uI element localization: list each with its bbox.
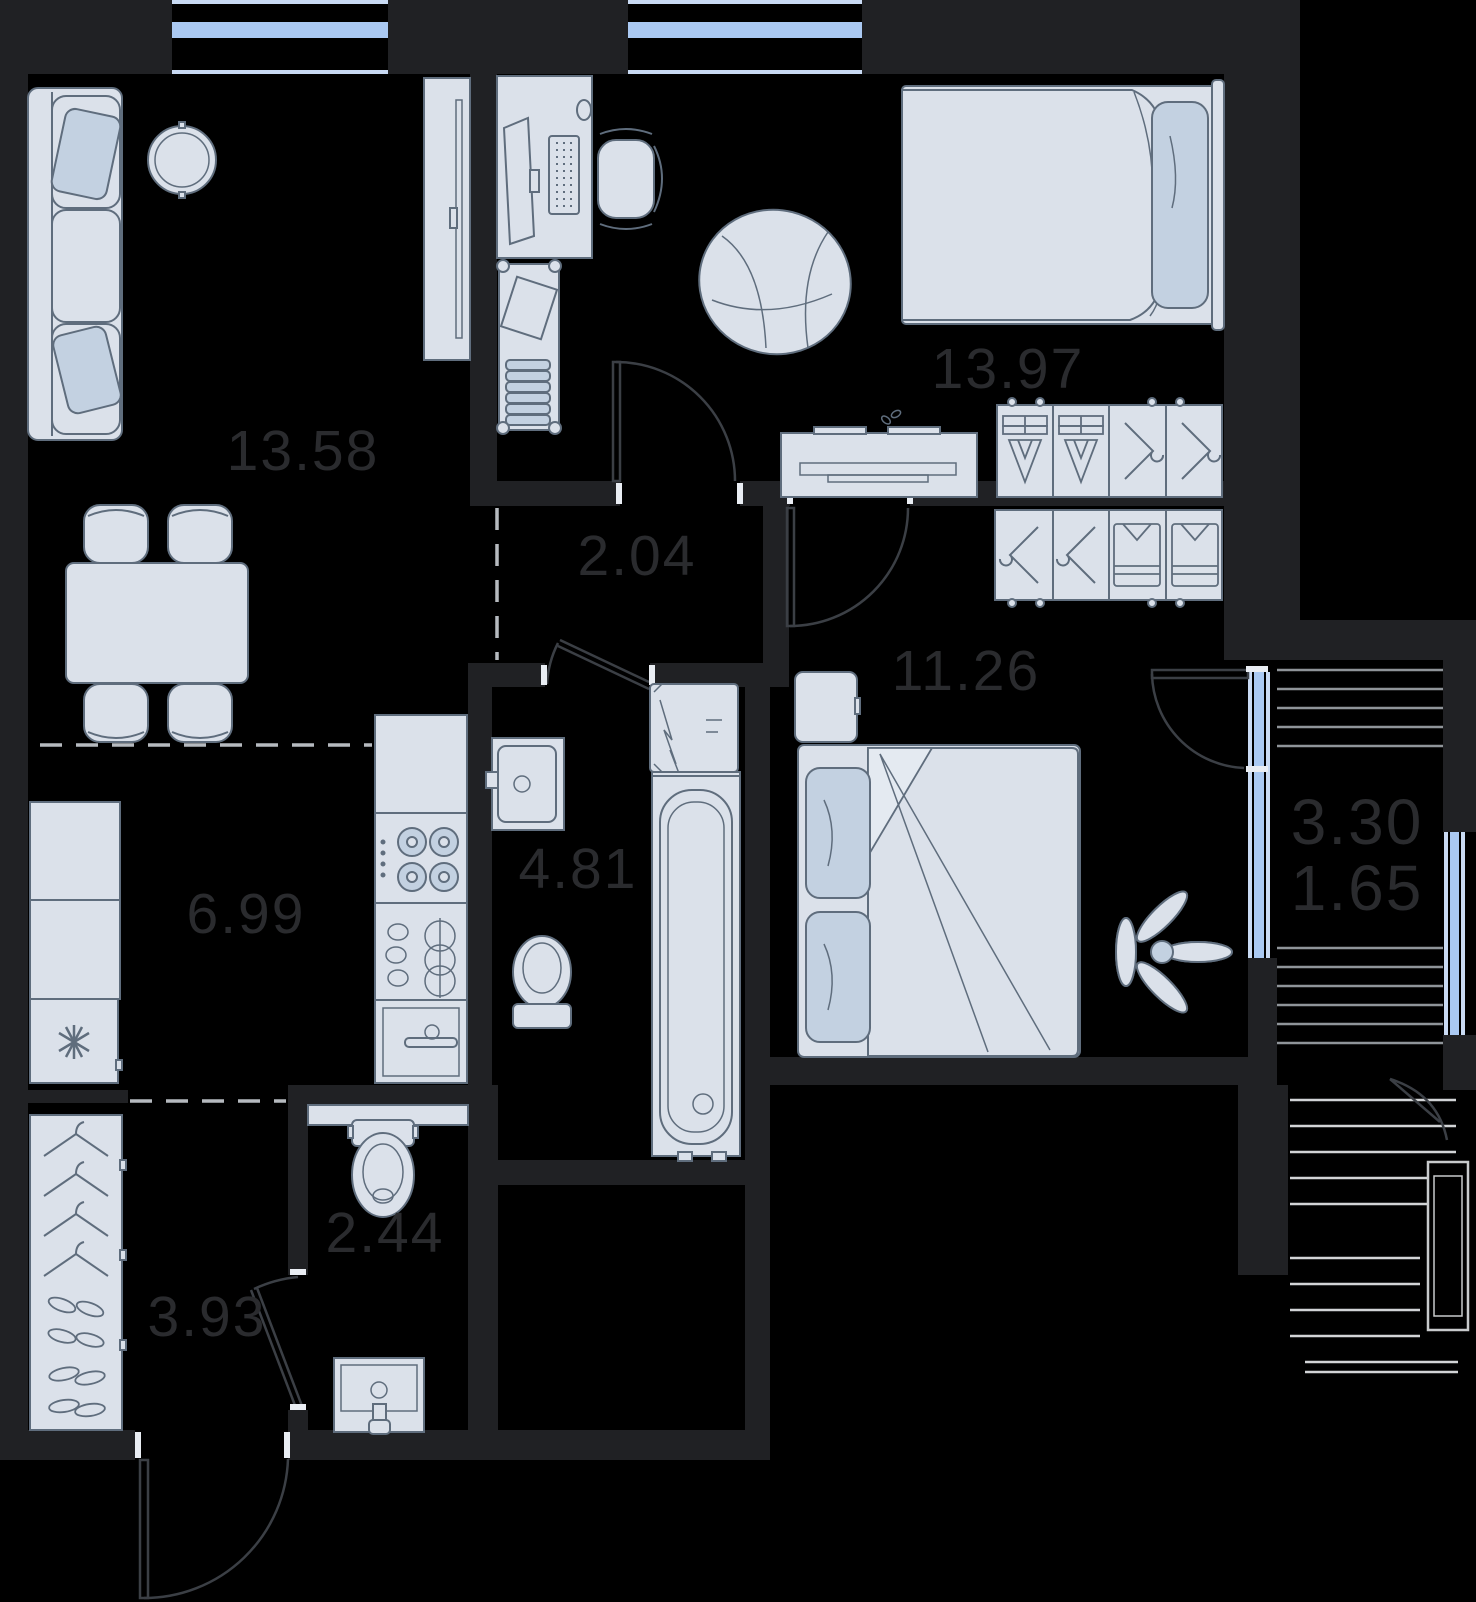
bookshelf — [497, 260, 561, 434]
window-living — [172, 0, 388, 74]
ac-unit — [1428, 1162, 1468, 1330]
label-balcony-total: 3.30 — [1291, 786, 1424, 858]
floor-plan-canvas: 13.58 2.04 13.97 11.26 6.99 4.81 2.44 3.… — [0, 0, 1476, 1602]
label-hallway: 2.04 — [578, 524, 697, 588]
door-entry — [140, 1459, 288, 1598]
stove — [375, 813, 467, 903]
pillow — [1152, 102, 1208, 308]
label-bathroom: 4.81 — [519, 837, 638, 901]
floor-plan: 13.58 2.04 13.97 11.26 6.99 4.81 2.44 3.… — [0, 0, 1476, 1602]
pillow — [806, 768, 870, 898]
toilet-bath — [513, 936, 571, 1028]
neighbor-balcony — [1290, 1079, 1468, 1372]
living-room — [28, 78, 470, 742]
label-bedroom-second: 11.26 — [892, 639, 1040, 703]
mouse — [577, 100, 591, 120]
washing-machine — [650, 684, 738, 776]
bedroom-second — [795, 510, 1232, 1057]
bed-double — [798, 745, 1080, 1057]
bed-single — [902, 80, 1224, 330]
bedroom-main — [497, 76, 1224, 497]
wash-basin-wc — [334, 1358, 424, 1434]
label-entrance: 3.93 — [148, 1285, 267, 1349]
dresser — [781, 427, 977, 497]
fridge — [30, 999, 122, 1083]
pillow — [806, 912, 870, 1042]
label-bedroom-main: 13.97 — [932, 337, 1085, 401]
label-balcony-counted: 1.65 — [1291, 852, 1424, 924]
wc — [308, 1105, 468, 1434]
window-balcony-door — [1248, 672, 1270, 958]
tv-panel — [424, 78, 470, 360]
window-balcony-right — [1444, 832, 1465, 1035]
window-bedroom-main — [628, 0, 862, 74]
dining-set — [66, 505, 248, 742]
label-wc: 2.44 — [326, 1201, 445, 1265]
kitchen-cabinet-door — [375, 1000, 467, 1083]
kitchen-sink — [375, 903, 467, 1000]
dining-table — [66, 563, 248, 683]
desk-set — [497, 76, 662, 258]
kitchen-cabinet — [30, 900, 120, 999]
entrance-hall — [30, 1115, 126, 1430]
hanging-pouf — [684, 194, 866, 370]
plant — [1116, 886, 1232, 1019]
keyboard — [549, 136, 579, 214]
wash-basin — [486, 738, 564, 830]
door-balcony — [1152, 670, 1248, 768]
round-pouf — [148, 122, 216, 198]
label-living: 13.58 — [227, 419, 380, 483]
door-bedroom-main — [613, 362, 735, 481]
nightstand — [795, 672, 857, 742]
wardrobe-main — [997, 398, 1222, 497]
door-bathroom — [547, 640, 649, 689]
bathtub — [652, 772, 740, 1161]
door-bedroom-second — [787, 508, 908, 626]
label-kitchen: 6.99 — [187, 882, 306, 946]
neighbor-door-swing — [1390, 1079, 1447, 1140]
decor-sparkle — [880, 409, 902, 426]
office-chair — [598, 129, 662, 229]
wardrobe-second — [995, 510, 1222, 607]
kitchen-cabinet — [30, 802, 120, 900]
sofa — [28, 88, 123, 440]
kitchen-counter — [375, 715, 467, 813]
bathroom — [486, 684, 740, 1161]
